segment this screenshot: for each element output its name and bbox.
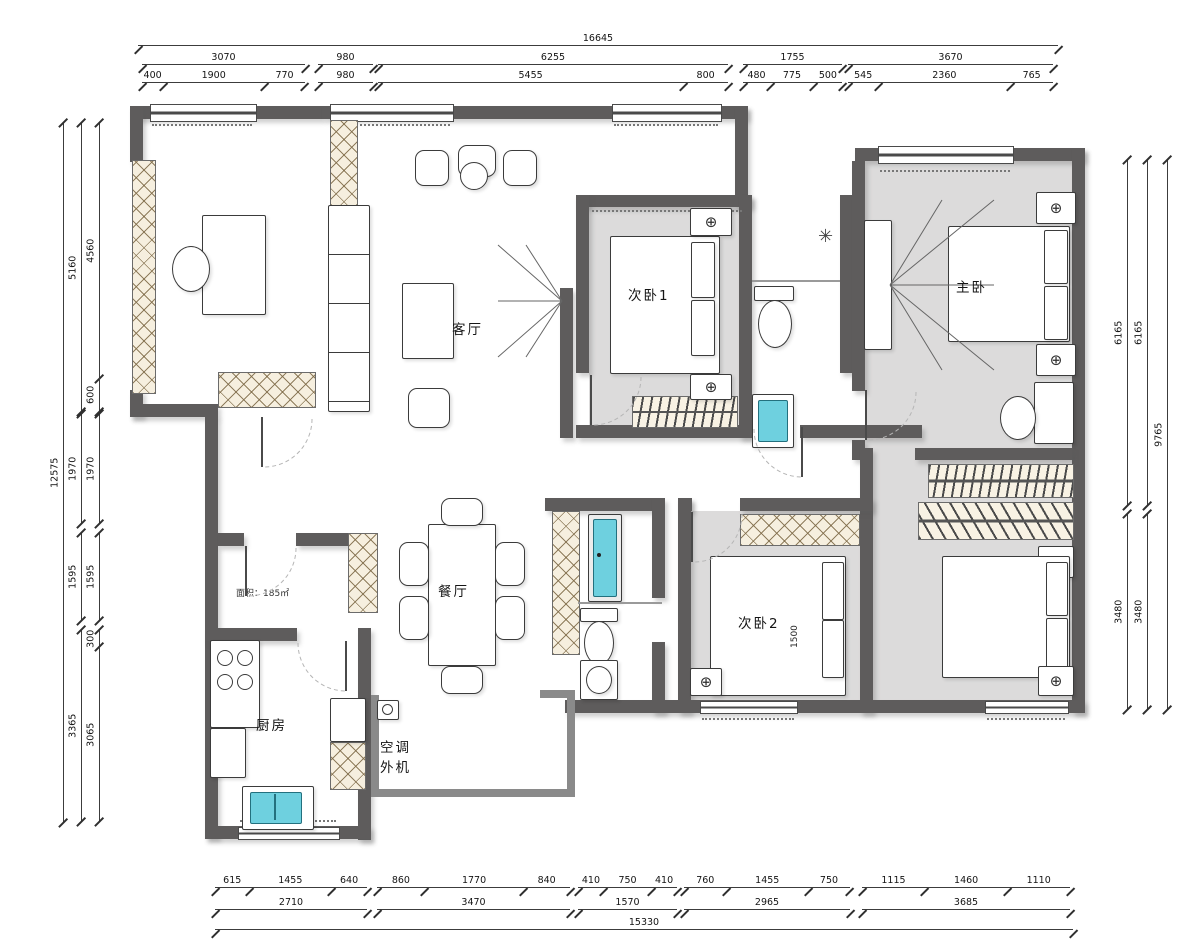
dim-value: 12575	[51, 458, 61, 488]
dim-segment: 2710	[215, 894, 367, 910]
dim-segment: 1455	[727, 872, 808, 888]
dim-value: 4560	[87, 239, 97, 263]
tv-cabinet	[864, 220, 892, 350]
dim-left-c2-b: 1970	[66, 414, 82, 524]
dim-segment: 500	[814, 67, 842, 83]
dim-value: 765	[1022, 71, 1042, 81]
round-table	[460, 162, 488, 190]
curtain-line	[987, 718, 1065, 720]
dim-segment: 16645	[138, 30, 1058, 46]
toilet-tank	[754, 286, 794, 301]
dim-top-r3-g5: 5452360765	[848, 67, 1053, 83]
dim-left-c3-c: 1595	[84, 533, 100, 621]
room-label-bedroom2: 次卧2	[738, 612, 780, 632]
armchair	[415, 150, 449, 186]
room-label-ac-line2: 外机	[380, 756, 411, 776]
room-label-ac-line1: 空调	[380, 736, 411, 756]
wall	[545, 498, 655, 511]
floor-plan-page: { "rooms": { "living": "客厅", "bedroom1":…	[0, 0, 1200, 949]
desk	[202, 215, 266, 315]
wall	[296, 533, 348, 546]
light-icon: ⊕	[1050, 672, 1063, 690]
nightstand: ⊕	[1036, 192, 1076, 224]
dim-segment: 1570	[578, 894, 677, 910]
shower-divider	[752, 280, 840, 282]
dim-value: 980	[335, 71, 355, 81]
cabinet-hatch	[218, 372, 316, 408]
dim-segment: 750	[808, 872, 850, 888]
dim-segment: 765	[1010, 67, 1053, 83]
dim-segment: 3470	[377, 894, 570, 910]
dim-value: 1595	[87, 565, 97, 589]
dim-segment: 860	[377, 872, 425, 888]
pillow	[1046, 562, 1068, 616]
wardrobe-hatch	[740, 514, 860, 546]
pillow	[822, 562, 844, 620]
dim-segment: 5455	[378, 67, 683, 83]
dim-top-r3-g3: 5455800	[378, 67, 728, 83]
dim-top-r2-g3: 6255	[378, 49, 728, 65]
dim-value: 1595	[69, 565, 79, 589]
dim-segment: 1970	[66, 414, 82, 524]
burner	[217, 650, 233, 666]
dim-segment: 12575	[48, 123, 64, 823]
toilet-bowl	[584, 621, 614, 665]
room-label-dining: 餐厅	[438, 580, 469, 600]
dim-value: 860	[391, 876, 411, 886]
tv-cabinet	[328, 205, 370, 412]
dim-segment: 3480	[1112, 514, 1128, 710]
curtain-line	[880, 170, 1010, 172]
kitchen-sink	[250, 792, 302, 824]
dim-value: 1115	[880, 876, 906, 886]
room-label-living: 客厅	[452, 318, 483, 338]
window	[878, 146, 1014, 164]
wardrobe-books	[928, 464, 1074, 498]
dim-segment: 1595	[84, 533, 100, 621]
room-label-bedroom1: 次卧1	[628, 284, 670, 304]
dim-segment: 410	[578, 872, 604, 888]
wall	[218, 533, 244, 546]
toilet-tank	[580, 608, 618, 622]
dim-segment: 980	[318, 67, 373, 83]
dim-value: 640	[339, 876, 359, 886]
dim-segment: 750	[604, 872, 651, 888]
wall	[915, 448, 1072, 460]
dim-value: 545	[853, 71, 873, 81]
door-leaf	[691, 512, 693, 562]
door-leaf	[345, 641, 347, 691]
dim-value: 3070	[210, 53, 236, 63]
dim-segment: 9765	[1152, 160, 1168, 710]
balcony-parapet	[540, 690, 575, 698]
pillow	[691, 300, 715, 356]
dim-value: 6165	[1115, 321, 1125, 345]
dim-value: 6255	[540, 53, 566, 63]
door-arc	[296, 641, 348, 693]
dim-top-r2-g2: 980	[318, 49, 373, 65]
kitchen-counter	[210, 728, 246, 778]
dining-chair	[441, 498, 483, 526]
dining-chair	[495, 542, 525, 586]
dim-value: 3065	[87, 722, 97, 746]
dim-value: 3470	[460, 898, 486, 908]
dim-bot-r1-g5: 111514601110	[862, 872, 1070, 888]
dim-segment: 3480	[1132, 514, 1148, 710]
dim-value: 775	[782, 71, 802, 81]
wall	[130, 106, 143, 162]
door-leaf	[590, 375, 592, 425]
dim-segment: 4560	[84, 123, 100, 378]
dining-chair	[441, 666, 483, 694]
room-label-master: 主卧	[956, 276, 987, 296]
dim-segment: 3065	[84, 647, 100, 822]
dim-segment: 3365	[66, 630, 82, 822]
dim-value: 3670	[937, 53, 963, 63]
dim-segment: 480	[743, 67, 770, 83]
dim-segment: 5160	[66, 123, 82, 412]
dim-value: 2360	[931, 71, 957, 81]
dim-right-total: 9765	[1152, 160, 1168, 710]
dim-value: 1770	[461, 876, 487, 886]
dim-value: 615	[222, 876, 242, 886]
wall	[739, 195, 752, 438]
dim-value: 760	[695, 876, 715, 886]
dim-segment: 15330	[215, 914, 1073, 930]
burner	[237, 674, 253, 690]
balcony-parapet	[371, 789, 575, 797]
dim-segment: 1115	[862, 872, 925, 888]
dim-segment: 2965	[684, 894, 850, 910]
dim-value: 1570	[614, 898, 640, 908]
shoe-cabinet-hatch	[348, 533, 378, 613]
nightstand: ⊕	[1038, 666, 1074, 696]
dim-value: 1755	[779, 53, 805, 63]
wall	[576, 195, 752, 207]
armchair	[503, 150, 537, 186]
dim-value: 300	[87, 629, 97, 647]
door-leaf	[245, 546, 247, 596]
dim-value: 15330	[628, 918, 660, 928]
dim-value: 600	[87, 386, 97, 404]
light-icon: ⊕	[705, 213, 718, 231]
room-label-kitchen: 厨房	[256, 714, 287, 734]
dim-right-c2-a: 6165	[1132, 160, 1148, 506]
dim-value: 16645	[582, 34, 614, 44]
dim-value: 800	[696, 71, 716, 81]
dim-value: 3685	[953, 898, 979, 908]
dim-value: 5455	[518, 71, 544, 81]
dim-value: 750	[819, 876, 839, 886]
dim-segment: 2360	[878, 67, 1010, 83]
pillow	[1044, 230, 1068, 284]
nightstand: ⊕	[690, 208, 732, 236]
door-arc	[246, 546, 298, 598]
dim-value: 1900	[201, 71, 227, 81]
door-leaf	[261, 417, 263, 467]
dim-top-r2-g5: 3670	[848, 49, 1053, 65]
dim-right-c1-b: 3480	[1112, 514, 1128, 710]
dim-segment: 640	[331, 872, 367, 888]
dim-bot-r2-g3: 1570	[578, 894, 677, 910]
burner	[217, 674, 233, 690]
dim-top-total: 16645	[138, 30, 1058, 46]
door-handle	[597, 553, 601, 557]
dim-segment: 600	[84, 378, 100, 412]
entry-door	[593, 519, 617, 597]
dim-bot-r2-g4: 2965	[684, 894, 850, 910]
dim-segment: 1110	[1007, 872, 1070, 888]
dim-segment: 760	[684, 872, 727, 888]
bed-width-dim: 1500	[790, 625, 800, 648]
dim-segment: 615	[215, 872, 250, 888]
dim-segment: 300	[84, 630, 100, 647]
door-arc	[752, 427, 804, 479]
dim-left-c2-d: 3365	[66, 630, 82, 822]
door-arc	[866, 390, 918, 442]
dim-value: 410	[581, 876, 601, 886]
dim-value: 2965	[754, 898, 780, 908]
dim-segment: 545	[848, 67, 878, 83]
wall	[735, 106, 748, 207]
dim-bot-r1-g3: 410750410	[578, 872, 677, 888]
door-arc	[692, 512, 744, 564]
dim-value: 1455	[754, 876, 780, 886]
dim-segment: 410	[651, 872, 677, 888]
dim-value: 1970	[87, 457, 97, 481]
shower-icon: ✳	[818, 226, 833, 247]
dim-segment: 6165	[1132, 160, 1148, 506]
window	[612, 104, 722, 122]
dim-segment: 1455	[250, 872, 332, 888]
floor-plan: 16645 3070 980 6255 1755 3670 4001900770…	[0, 0, 1200, 949]
window	[700, 701, 798, 714]
window-sill-hatch	[132, 160, 156, 394]
window	[150, 104, 257, 122]
nightstand: ⊕	[1036, 344, 1076, 376]
dim-value: 9765	[1155, 423, 1165, 447]
pillow	[691, 242, 715, 298]
toilet-bowl	[758, 300, 792, 348]
dim-segment: 6255	[378, 49, 728, 65]
dim-segment: 1900	[163, 67, 264, 83]
desk-chair	[1000, 396, 1036, 440]
dim-segment: 3670	[848, 49, 1053, 65]
dim-bot-r1-g1: 6151455640	[215, 872, 367, 888]
balcony-parapet	[567, 690, 575, 797]
kitchen-counter	[330, 698, 366, 742]
dim-segment: 6165	[1112, 160, 1128, 506]
burner	[237, 650, 253, 666]
wall	[652, 498, 665, 598]
coffee-table	[402, 283, 454, 359]
dim-value: 2710	[278, 898, 304, 908]
nightstand: ⊕	[690, 668, 722, 696]
dim-value: 980	[335, 53, 355, 63]
dim-value: 500	[818, 71, 838, 81]
dim-left-c3-b: 1970	[84, 414, 100, 524]
dim-bot-r2-g1: 2710	[215, 894, 367, 910]
cabinet-hatch	[330, 120, 358, 206]
dim-segment: 3685	[862, 894, 1070, 910]
dim-segment: 770	[264, 67, 305, 83]
dim-bot-r1-g4: 7601455750	[684, 872, 850, 888]
curtain-line	[614, 124, 718, 126]
dim-left-total: 12575	[48, 123, 64, 823]
dim-top-r3-g1: 4001900770	[142, 67, 305, 83]
door-leaf	[865, 390, 867, 440]
dim-value: 3480	[1115, 600, 1125, 624]
dim-left-c2-c: 1595	[66, 533, 82, 621]
light-icon: ⊕	[700, 673, 713, 691]
dining-chair	[495, 596, 525, 640]
dim-segment: 1770	[425, 872, 523, 888]
wall	[740, 498, 873, 511]
curtain-line	[702, 718, 794, 720]
pillow	[1044, 286, 1068, 340]
dim-top-r3-g4: 480775500	[743, 67, 842, 83]
dim-bot-r2-g5: 3685	[862, 894, 1070, 910]
nightstand: ⊕	[690, 374, 732, 400]
wardrobe-hangers	[918, 502, 1074, 540]
dim-top-r2-g4: 1755	[743, 49, 842, 65]
dim-value: 410	[654, 876, 674, 886]
dim-segment: 1460	[925, 872, 1007, 888]
dim-right-c2-b: 3480	[1132, 514, 1148, 710]
dim-segment: 400	[142, 67, 163, 83]
curtain-line	[152, 124, 252, 126]
ac-fan-circle	[382, 704, 393, 715]
dim-segment: 1755	[743, 49, 842, 65]
door-arc	[591, 375, 643, 427]
pillow	[822, 620, 844, 678]
dim-segment: 1595	[66, 533, 82, 621]
door-leaf	[801, 427, 803, 477]
dim-value: 6165	[1135, 321, 1145, 345]
dining-chair	[399, 542, 429, 586]
cabinet-hatch	[330, 742, 366, 790]
dim-left-c3-a: 4560600	[84, 123, 100, 412]
armchair	[408, 388, 450, 428]
dim-segment: 980	[318, 49, 373, 65]
light-icon: ⊕	[1050, 351, 1063, 369]
washer-drum	[586, 666, 612, 694]
wall	[576, 195, 589, 373]
dim-value: 1455	[277, 876, 303, 886]
dim-segment: 775	[770, 67, 814, 83]
door-arc	[262, 417, 314, 469]
dim-left-c3-d: 3003065	[84, 630, 100, 822]
dim-bot-total: 15330	[215, 914, 1073, 930]
dim-value: 750	[617, 876, 637, 886]
dim-segment: 800	[683, 67, 728, 83]
dim-value: 840	[537, 876, 557, 886]
desk-chair	[172, 246, 210, 292]
dim-left-c2-a: 5160	[66, 123, 82, 412]
dining-chair	[399, 596, 429, 640]
dim-bot-r1-g2: 8601770840	[377, 872, 570, 888]
dim-top-r3-g2: 980	[318, 67, 373, 83]
bath-divider	[578, 602, 662, 604]
cabinet-hatch	[552, 511, 580, 655]
dim-segment: 1970	[84, 414, 100, 524]
dim-value: 1970	[69, 457, 79, 481]
light-icon: ⊕	[1050, 199, 1063, 217]
dim-top-r2-g1: 3070	[142, 49, 305, 65]
dim-value: 770	[274, 71, 294, 81]
dim-value: 1460	[953, 876, 979, 886]
sink-divider	[274, 794, 276, 820]
dim-value: 400	[143, 71, 163, 81]
dim-segment: 840	[523, 872, 570, 888]
wall	[860, 448, 873, 713]
dim-value: 3480	[1135, 600, 1145, 624]
dim-value: 1110	[1026, 876, 1052, 886]
dim-value: 5160	[69, 255, 79, 279]
dim-value: 480	[746, 71, 766, 81]
dim-bot-r2-g2: 3470	[377, 894, 570, 910]
dim-segment: 3070	[142, 49, 305, 65]
pillow	[1046, 618, 1068, 672]
dim-value: 3365	[69, 714, 79, 738]
desk	[1034, 382, 1074, 444]
light-icon: ⊕	[705, 378, 718, 396]
window	[985, 701, 1069, 714]
wardrobe-books	[632, 396, 738, 428]
dim-right-c1-a: 6165	[1112, 160, 1128, 506]
tv-projection-lines	[498, 245, 562, 357]
